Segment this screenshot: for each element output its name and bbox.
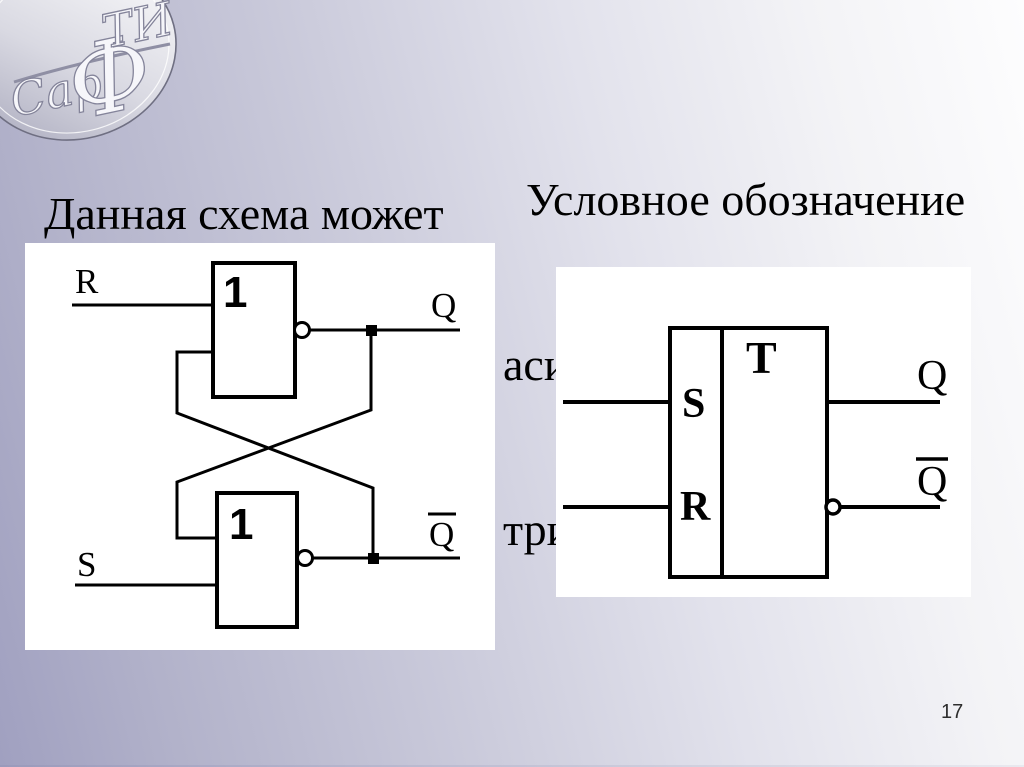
gate-bottom-label: 1 [229, 500, 253, 549]
label-q: Q [431, 286, 456, 325]
trigger-symbol: T S R Q Q [556, 267, 971, 597]
slide: { "page": { "number": "17" }, "logo": { … [0, 0, 1024, 767]
label-t: T [746, 332, 777, 383]
gate-top-label: 1 [223, 268, 247, 317]
label-r: R [75, 262, 99, 301]
label-s: S [682, 381, 705, 427]
label-qbar: Q [917, 459, 947, 505]
junction-dot-top [366, 325, 377, 336]
trigger-symbol-panel: T S R Q Q [556, 267, 971, 597]
label-qbar: Q [429, 515, 454, 554]
label-r: R [680, 484, 711, 530]
junction-dot-bottom [368, 553, 379, 564]
inversion-bubble-top-icon [295, 323, 310, 338]
inversion-bubble-icon [826, 500, 840, 514]
label-q: Q [917, 353, 947, 399]
gate-schematic: 1 1 R S Q Q [25, 243, 495, 650]
inversion-bubble-bottom-icon [298, 551, 313, 566]
page-number: 17 [941, 701, 963, 724]
left-caption-line: Данная схема может [44, 186, 489, 241]
right-caption-line: Условное обозначение [503, 172, 965, 227]
label-s: S [77, 545, 96, 584]
gate-schematic-panel: 1 1 R S Q Q [25, 243, 495, 650]
